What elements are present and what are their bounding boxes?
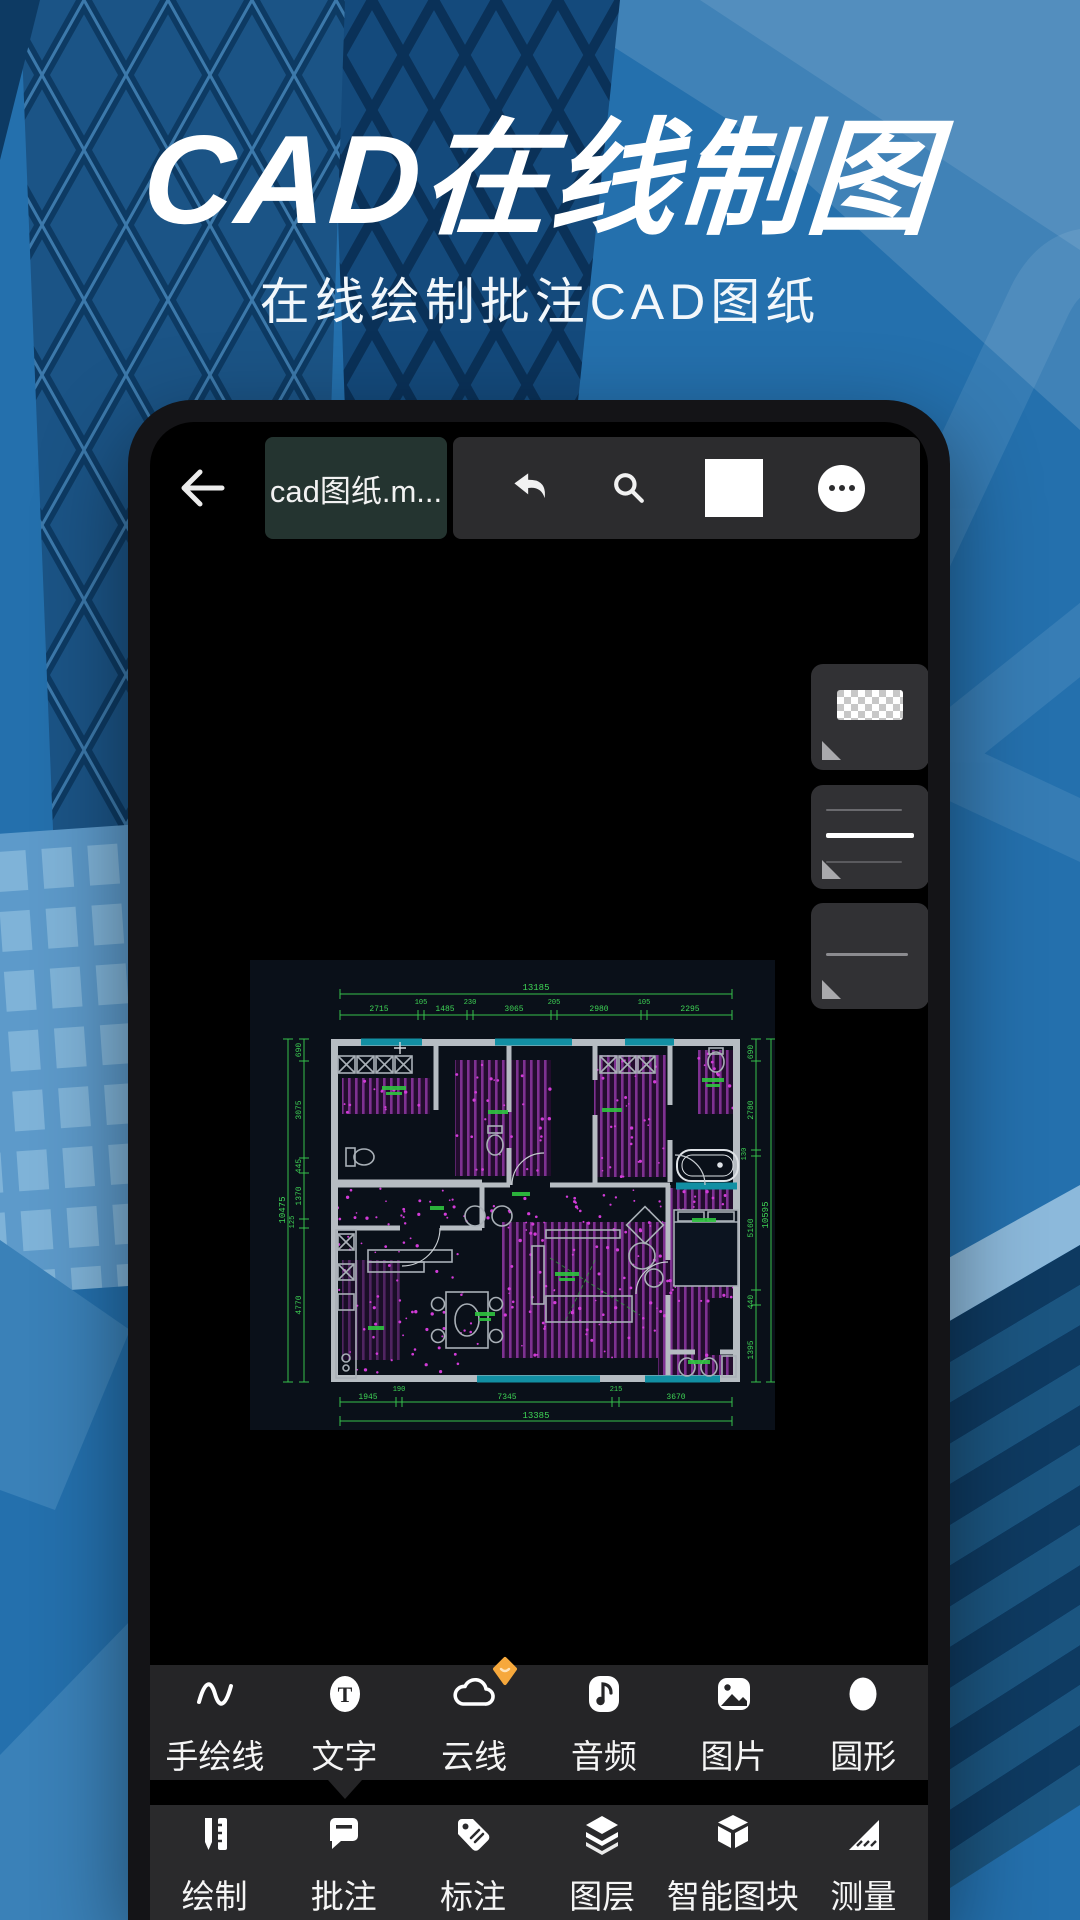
- resize-handle-icon[interactable]: [822, 980, 841, 999]
- tool-cloud-line[interactable]: 云线: [409, 1665, 539, 1780]
- resize-handle-icon[interactable]: [822, 741, 841, 760]
- text-icon: T: [319, 1668, 371, 1720]
- back-arrow-icon: [174, 466, 230, 510]
- draw-icon: [189, 1808, 241, 1860]
- tool-audio[interactable]: 音频: [539, 1665, 669, 1780]
- svg-text:190: 190: [393, 1386, 406, 1394]
- svg-text:10475: 10475: [278, 1196, 288, 1223]
- svg-text:5160: 5160: [747, 1218, 756, 1237]
- cad-canvas[interactable]: 13185 2715 105 1485 230 3065 205 2980 10…: [250, 960, 775, 1430]
- svg-text:215: 215: [610, 1386, 623, 1394]
- svg-text:3075: 3075: [295, 1100, 304, 1119]
- file-name: cad图纸.m...: [270, 466, 442, 511]
- tab-layers[interactable]: 图层: [538, 1805, 667, 1920]
- resize-handle-icon[interactable]: [822, 860, 841, 879]
- vip-gem-badge: [492, 1656, 518, 1686]
- freehand-line-icon: [189, 1668, 241, 1720]
- submenu-pointer: [328, 1780, 362, 1799]
- svg-text:13185: 13185: [522, 983, 549, 993]
- svg-text:3670: 3670: [666, 1393, 685, 1402]
- svg-text:1485: 1485: [435, 1005, 454, 1014]
- tool-circle-shape[interactable]: 圆形: [798, 1665, 928, 1780]
- svg-text:105: 105: [415, 999, 428, 1007]
- more-icon[interactable]: [818, 465, 865, 512]
- svg-text:2715: 2715: [369, 1005, 388, 1014]
- cloud-line-icon: [448, 1668, 500, 1720]
- page-subtitle: 在线绘制批注CAD图纸: [0, 262, 1080, 334]
- app-screen: cad图纸.m...: [150, 422, 928, 1920]
- svg-text:7345: 7345: [497, 1393, 516, 1402]
- phone-mockup: cad图纸.m...: [128, 400, 950, 1920]
- tool-image[interactable]: 图片: [669, 1665, 799, 1780]
- svg-text:3065: 3065: [504, 1005, 523, 1014]
- svg-text:125: 125: [289, 1216, 297, 1229]
- svg-text:445: 445: [295, 1159, 304, 1174]
- tab-annotate[interactable]: 批注: [279, 1805, 408, 1920]
- svg-text:130: 130: [741, 1148, 749, 1161]
- svg-text:690: 690: [747, 1045, 756, 1060]
- svg-text:4770: 4770: [295, 1295, 304, 1314]
- thin-line-panel[interactable]: [811, 903, 928, 1009]
- promo-page: CAD在线制图 在线绘制批注CAD图纸 cad图纸.m...: [0, 0, 1080, 1920]
- svg-text:1945: 1945: [358, 1393, 377, 1402]
- open-file-chip[interactable]: cad图纸.m...: [265, 437, 447, 539]
- main-toolbar: 绘制 批注: [150, 1805, 928, 1920]
- tool-text[interactable]: T 文字: [280, 1665, 410, 1780]
- svg-text:690: 690: [295, 1043, 304, 1058]
- svg-text:10595: 10595: [761, 1201, 771, 1228]
- circle-shape-icon: [837, 1668, 889, 1720]
- tab-smart-block[interactable]: 智能图块: [667, 1805, 799, 1920]
- transparency-pattern-swatch: [837, 690, 903, 720]
- svg-text:2295: 2295: [680, 1005, 699, 1014]
- smart-block-icon: [707, 1808, 759, 1860]
- app-topbar: cad图纸.m...: [150, 437, 928, 539]
- svg-text:1370: 1370: [295, 1186, 304, 1205]
- svg-text:13385: 13385: [522, 1411, 549, 1421]
- annotate-submenu: 手绘线 T 文字: [150, 1665, 928, 1780]
- svg-text:440: 440: [747, 1295, 756, 1310]
- annotate-icon: [318, 1808, 370, 1860]
- tab-measure[interactable]: 测量: [799, 1805, 928, 1920]
- tab-dimension[interactable]: 标注: [408, 1805, 537, 1920]
- cad-floor-plan: 13185 2715 105 1485 230 3065 205 2980 10…: [250, 960, 775, 1430]
- audio-icon: [578, 1668, 630, 1720]
- page-title: CAD在线制图: [0, 78, 1080, 260]
- layers-icon: [576, 1808, 628, 1860]
- svg-text:2780: 2780: [747, 1100, 756, 1119]
- search-icon[interactable]: [607, 466, 651, 510]
- color-swatch-button[interactable]: [705, 459, 763, 517]
- svg-text:230: 230: [464, 999, 477, 1007]
- measure-icon: [837, 1808, 889, 1860]
- image-icon: [708, 1668, 760, 1720]
- svg-text:1395: 1395: [747, 1340, 756, 1359]
- back-button[interactable]: [168, 437, 236, 539]
- svg-text:205: 205: [548, 999, 561, 1007]
- svg-text:2980: 2980: [589, 1005, 608, 1014]
- tab-draw[interactable]: 绘制: [150, 1805, 279, 1920]
- undo-icon[interactable]: [508, 466, 552, 510]
- dimension-tag-icon: [447, 1808, 499, 1860]
- tool-freehand-line[interactable]: 手绘线: [150, 1665, 280, 1780]
- topbar-actions: [453, 437, 920, 539]
- line-width-panel[interactable]: [811, 785, 928, 889]
- svg-text:T: T: [337, 1682, 352, 1707]
- transparency-panel[interactable]: [811, 664, 928, 770]
- svg-text:105: 105: [638, 999, 651, 1007]
